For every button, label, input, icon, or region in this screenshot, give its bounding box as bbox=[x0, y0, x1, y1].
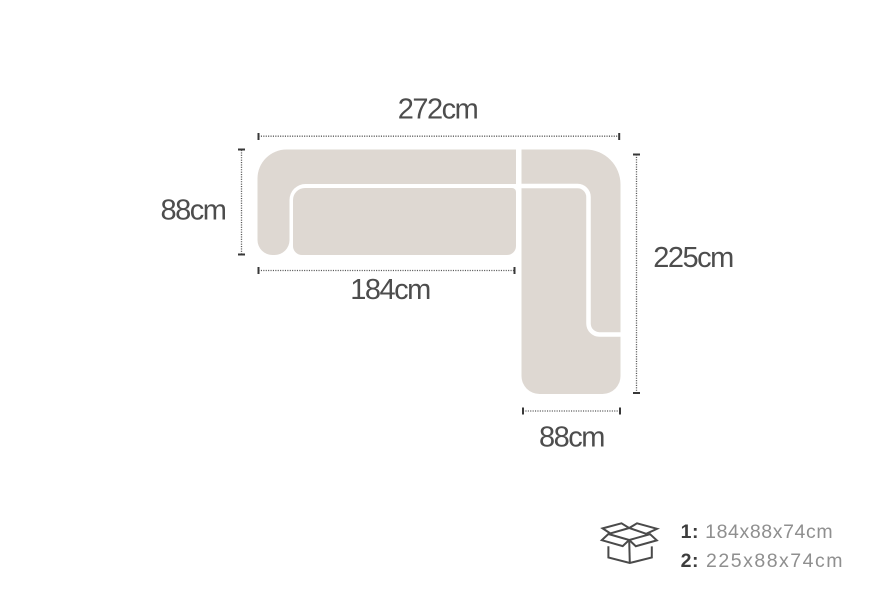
svg-text:88cm: 88cm bbox=[161, 195, 226, 227]
svg-text:272cm: 272cm bbox=[398, 94, 478, 126]
svg-text:2: 225x88x74cm: 2: 225x88x74cm bbox=[681, 550, 844, 572]
svg-text:88cm: 88cm bbox=[539, 422, 604, 454]
svg-text:1: 184x88x74cm: 1: 184x88x74cm bbox=[681, 521, 834, 543]
svg-text:225cm: 225cm bbox=[653, 242, 733, 274]
svg-text:184cm: 184cm bbox=[350, 274, 430, 306]
